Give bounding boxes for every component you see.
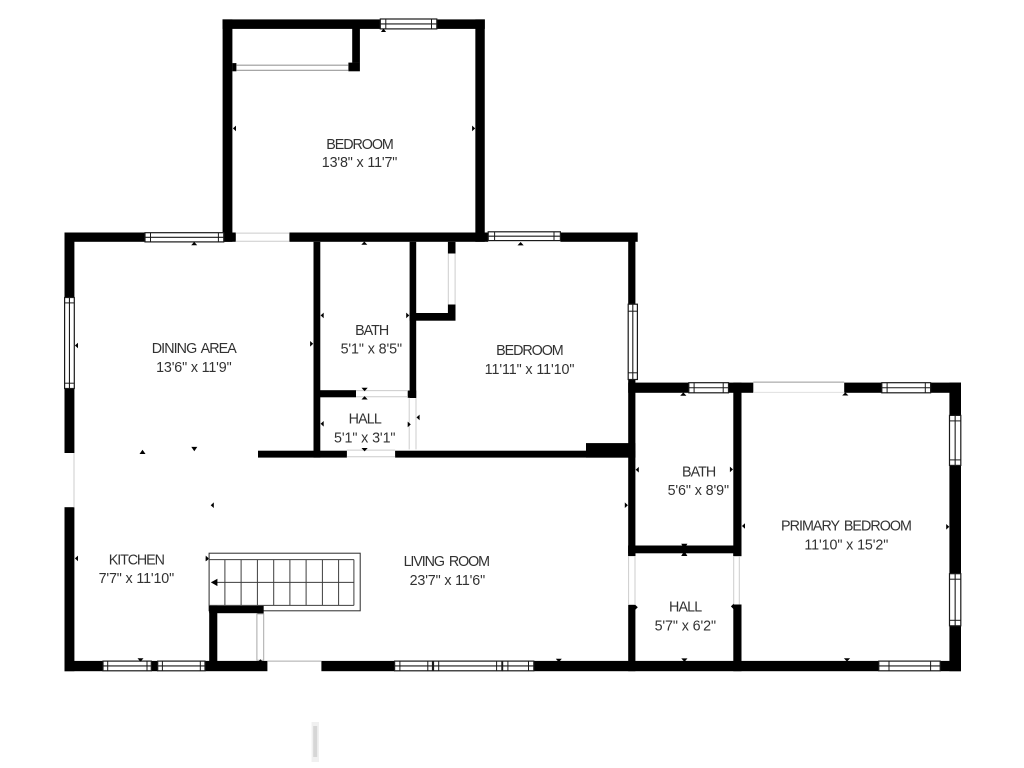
svg-text:5'1" x 3'1": 5'1" x 3'1" bbox=[334, 430, 395, 446]
svg-text:11'10" x 15'2": 11'10" x 15'2" bbox=[804, 537, 888, 553]
svg-text:13'6" x 11'9": 13'6" x 11'9" bbox=[156, 360, 231, 376]
svg-text:BATH: BATH bbox=[355, 323, 389, 339]
svg-text:LIVING ROOM: LIVING ROOM bbox=[404, 554, 490, 570]
svg-text:13'8" x 11'7": 13'8" x 11'7" bbox=[322, 155, 397, 171]
svg-text:DINING AREA: DINING AREA bbox=[152, 341, 238, 357]
svg-text:5'6" x 8'9": 5'6" x 8'9" bbox=[668, 483, 729, 499]
svg-text:BATH: BATH bbox=[682, 464, 716, 480]
svg-text:5'7" x 6'2": 5'7" x 6'2" bbox=[655, 618, 716, 634]
svg-text:23'7" x 11'6": 23'7" x 11'6" bbox=[410, 573, 485, 589]
svg-text:PRIMARY BEDROOM: PRIMARY BEDROOM bbox=[781, 519, 911, 535]
svg-text:HALL: HALL bbox=[669, 600, 702, 616]
svg-text:BEDROOM: BEDROOM bbox=[326, 137, 393, 153]
svg-text:5'1" x 8'5": 5'1" x 8'5" bbox=[341, 342, 402, 358]
svg-text:7'7" x 11'10": 7'7" x 11'10" bbox=[99, 571, 174, 587]
svg-text:BEDROOM: BEDROOM bbox=[496, 343, 563, 359]
svg-text:KITCHEN: KITCHEN bbox=[109, 553, 165, 569]
svg-text:11'11" x 11'10": 11'11" x 11'10" bbox=[485, 362, 575, 378]
svg-text:HALL: HALL bbox=[349, 412, 382, 428]
